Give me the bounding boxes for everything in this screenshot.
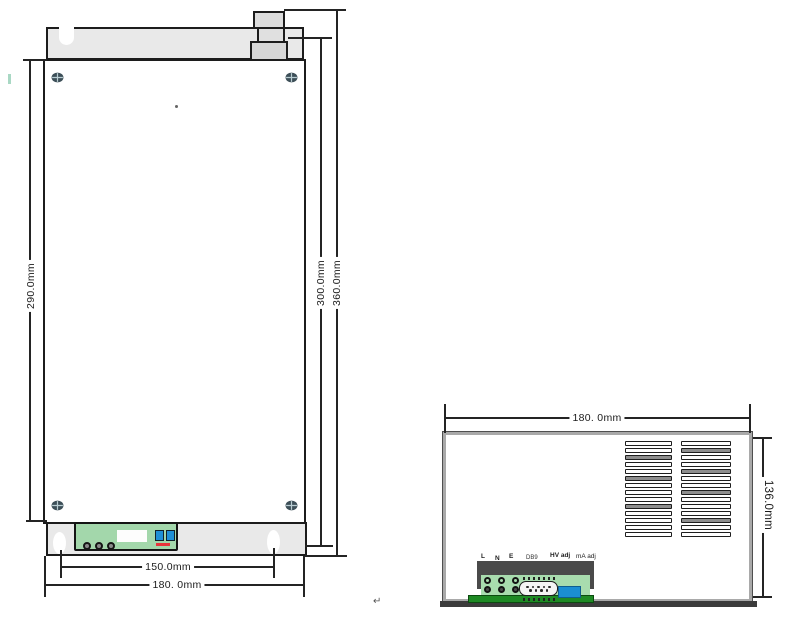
- blue-connector-2: [166, 530, 175, 541]
- vent-slot: [625, 455, 672, 460]
- vent-slot: [625, 476, 672, 481]
- db9-pin-row: [523, 598, 555, 601]
- dim-label-body-height: 290.0mm: [25, 260, 37, 312]
- screw-icon: [51, 500, 64, 511]
- db9-pins-top: [526, 586, 551, 589]
- stray-mark: [8, 74, 11, 84]
- dim-tick: [26, 520, 47, 522]
- vent-slot: [625, 441, 672, 446]
- dimension-drawing-canvas: 290.0mm 300.0mm 360.0mm 150.0mm 180. 0mm…: [0, 0, 788, 617]
- dim-tick: [273, 548, 275, 578]
- panel-label-E: E: [509, 553, 513, 560]
- dim-label-side-height: 136.0mm: [762, 477, 774, 533]
- vent-slot: [681, 504, 731, 509]
- dim-tick: [23, 59, 47, 61]
- db9-pin-row: [523, 577, 555, 580]
- terminal-screw-icon: [498, 577, 505, 584]
- dim-tick: [303, 556, 305, 597]
- connector-panel-wall-right: [590, 561, 594, 589]
- vent-slot: [681, 525, 731, 530]
- vent-slot: [681, 476, 731, 481]
- dim-tick: [44, 556, 46, 597]
- vent-slot: [625, 462, 672, 467]
- dim-tick: [60, 550, 62, 578]
- vent-slot: [681, 462, 731, 467]
- vent-slot: [625, 532, 672, 537]
- vent-slot: [681, 448, 731, 453]
- vent-slot: [625, 469, 672, 474]
- vent-slot: [625, 497, 672, 502]
- terminal-screw-icon: [484, 577, 491, 584]
- dim-label-total-height: 360.0mm: [331, 257, 343, 309]
- vent-slot: [681, 483, 731, 488]
- screw-icon: [51, 72, 64, 83]
- vent-slot: [681, 441, 731, 446]
- terminal-screw-icon: [498, 586, 505, 593]
- terminal-screw-icon: [484, 586, 491, 593]
- vent-column-right: [681, 441, 731, 539]
- terminal-block-label-window: [117, 530, 147, 542]
- dim-tick: [753, 596, 772, 598]
- db9-pins-bottom: [529, 589, 548, 592]
- panel-label-L: L: [481, 553, 485, 560]
- terminal-screw-icon: [95, 542, 103, 550]
- vent-slot: [625, 504, 672, 509]
- db9-connector: [519, 581, 558, 596]
- dim-tick: [749, 404, 751, 433]
- dim-label-hole-spacing: 150.0mm: [142, 561, 194, 573]
- terminal-screw-icon: [512, 586, 519, 593]
- front-top-mounting-notch: [59, 25, 74, 45]
- blue-connector-1: [155, 530, 164, 541]
- dim-tick: [284, 9, 346, 11]
- vent-slot: [681, 490, 731, 495]
- terminal-screw-icon: [107, 542, 115, 550]
- screw-icon: [285, 72, 298, 83]
- panel-dot: [175, 105, 178, 108]
- vent-slot: [625, 518, 672, 523]
- vent-slot: [625, 525, 672, 530]
- vent-column-left: [625, 441, 672, 539]
- panel-label-HVadj: HV adj: [550, 552, 570, 559]
- terminal-screw-icon: [512, 577, 519, 584]
- dim-tick: [305, 555, 347, 557]
- vent-slot: [625, 511, 672, 516]
- carriage-return-icon: ↵: [373, 596, 381, 607]
- vent-slot: [681, 469, 731, 474]
- screw-icon: [285, 500, 298, 511]
- connector-panel-cover: [477, 561, 594, 576]
- dim-tick: [753, 437, 772, 439]
- dim-label-flange-height: 300.0mm: [315, 257, 327, 309]
- panel-label-mAadj: mA adj: [576, 553, 596, 560]
- terminal-screw-icon: [83, 542, 91, 550]
- dim-tick: [444, 404, 446, 433]
- vent-slot: [681, 511, 731, 516]
- dim-label-front-width: 180. 0mm: [149, 579, 204, 591]
- vent-slot: [681, 518, 731, 523]
- hv-connector-base-box: [250, 41, 288, 61]
- blue-output-connector: [558, 586, 581, 598]
- vent-slot: [681, 455, 731, 460]
- vent-slot: [681, 497, 731, 502]
- front-body-panel: [43, 59, 306, 524]
- dim-tick: [288, 37, 332, 39]
- dim-tick: [305, 545, 333, 547]
- red-indicator: [156, 543, 170, 546]
- vent-slot: [625, 483, 672, 488]
- vent-slot: [625, 490, 672, 495]
- vent-slot: [625, 448, 672, 453]
- dim-label-side-width: 180. 0mm: [569, 412, 624, 424]
- vent-slot: [681, 532, 731, 537]
